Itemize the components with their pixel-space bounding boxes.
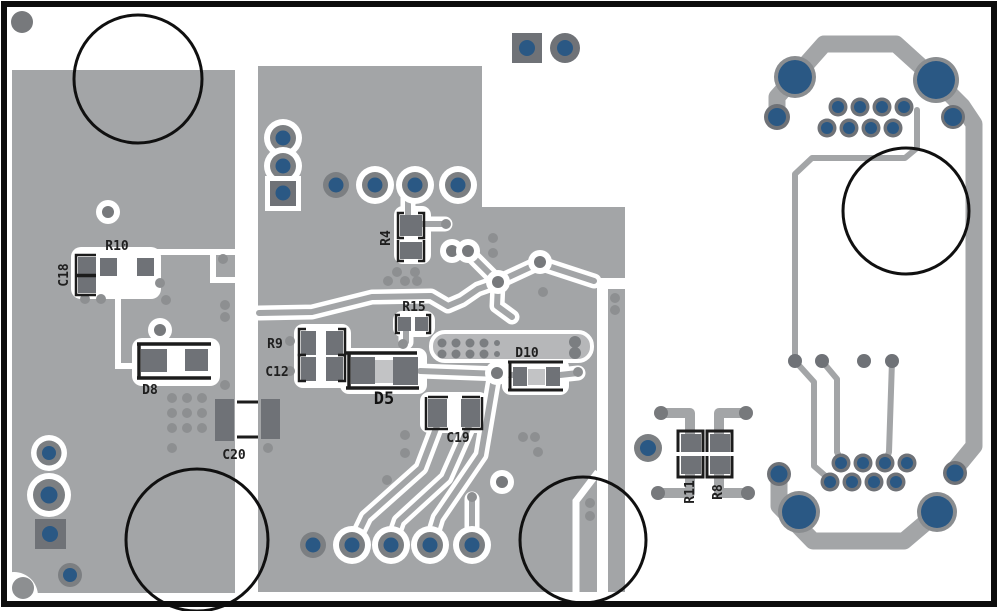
ref-label: D10 — [515, 346, 539, 361]
ref-label: D5 — [374, 389, 394, 409]
r11-r8-traces — [658, 413, 748, 493]
corner-dot — [11, 11, 33, 33]
connector-top-right[interactable] — [764, 56, 965, 138]
r11-r8-trace-dots — [651, 406, 755, 500]
ref-label: R4 — [379, 230, 394, 246]
pcb-layout-screenshot: C18 R10 D8 C20 R4 R15 R9 — [0, 0, 1000, 611]
ref-label: D8 — [142, 383, 158, 398]
dual-row-footprint[interactable] — [431, 332, 592, 361]
pcb-canvas[interactable]: C18 R10 D8 C20 R4 R15 R9 — [0, 0, 1000, 611]
ref-label: C20 — [222, 448, 246, 463]
ref-label: R8 — [711, 484, 726, 500]
ref-label: C18 — [57, 263, 72, 287]
right-trace-dots — [788, 354, 899, 368]
connector-bottom-right[interactable] — [767, 454, 967, 534]
mounting-hole — [843, 148, 969, 274]
ref-label: R11 — [683, 480, 698, 504]
ref-label: R9 — [267, 337, 283, 352]
ref-label: R10 — [105, 239, 129, 254]
ref-label: C12 — [265, 365, 288, 380]
ref-label: C19 — [446, 431, 469, 446]
ref-label: R15 — [402, 300, 425, 315]
